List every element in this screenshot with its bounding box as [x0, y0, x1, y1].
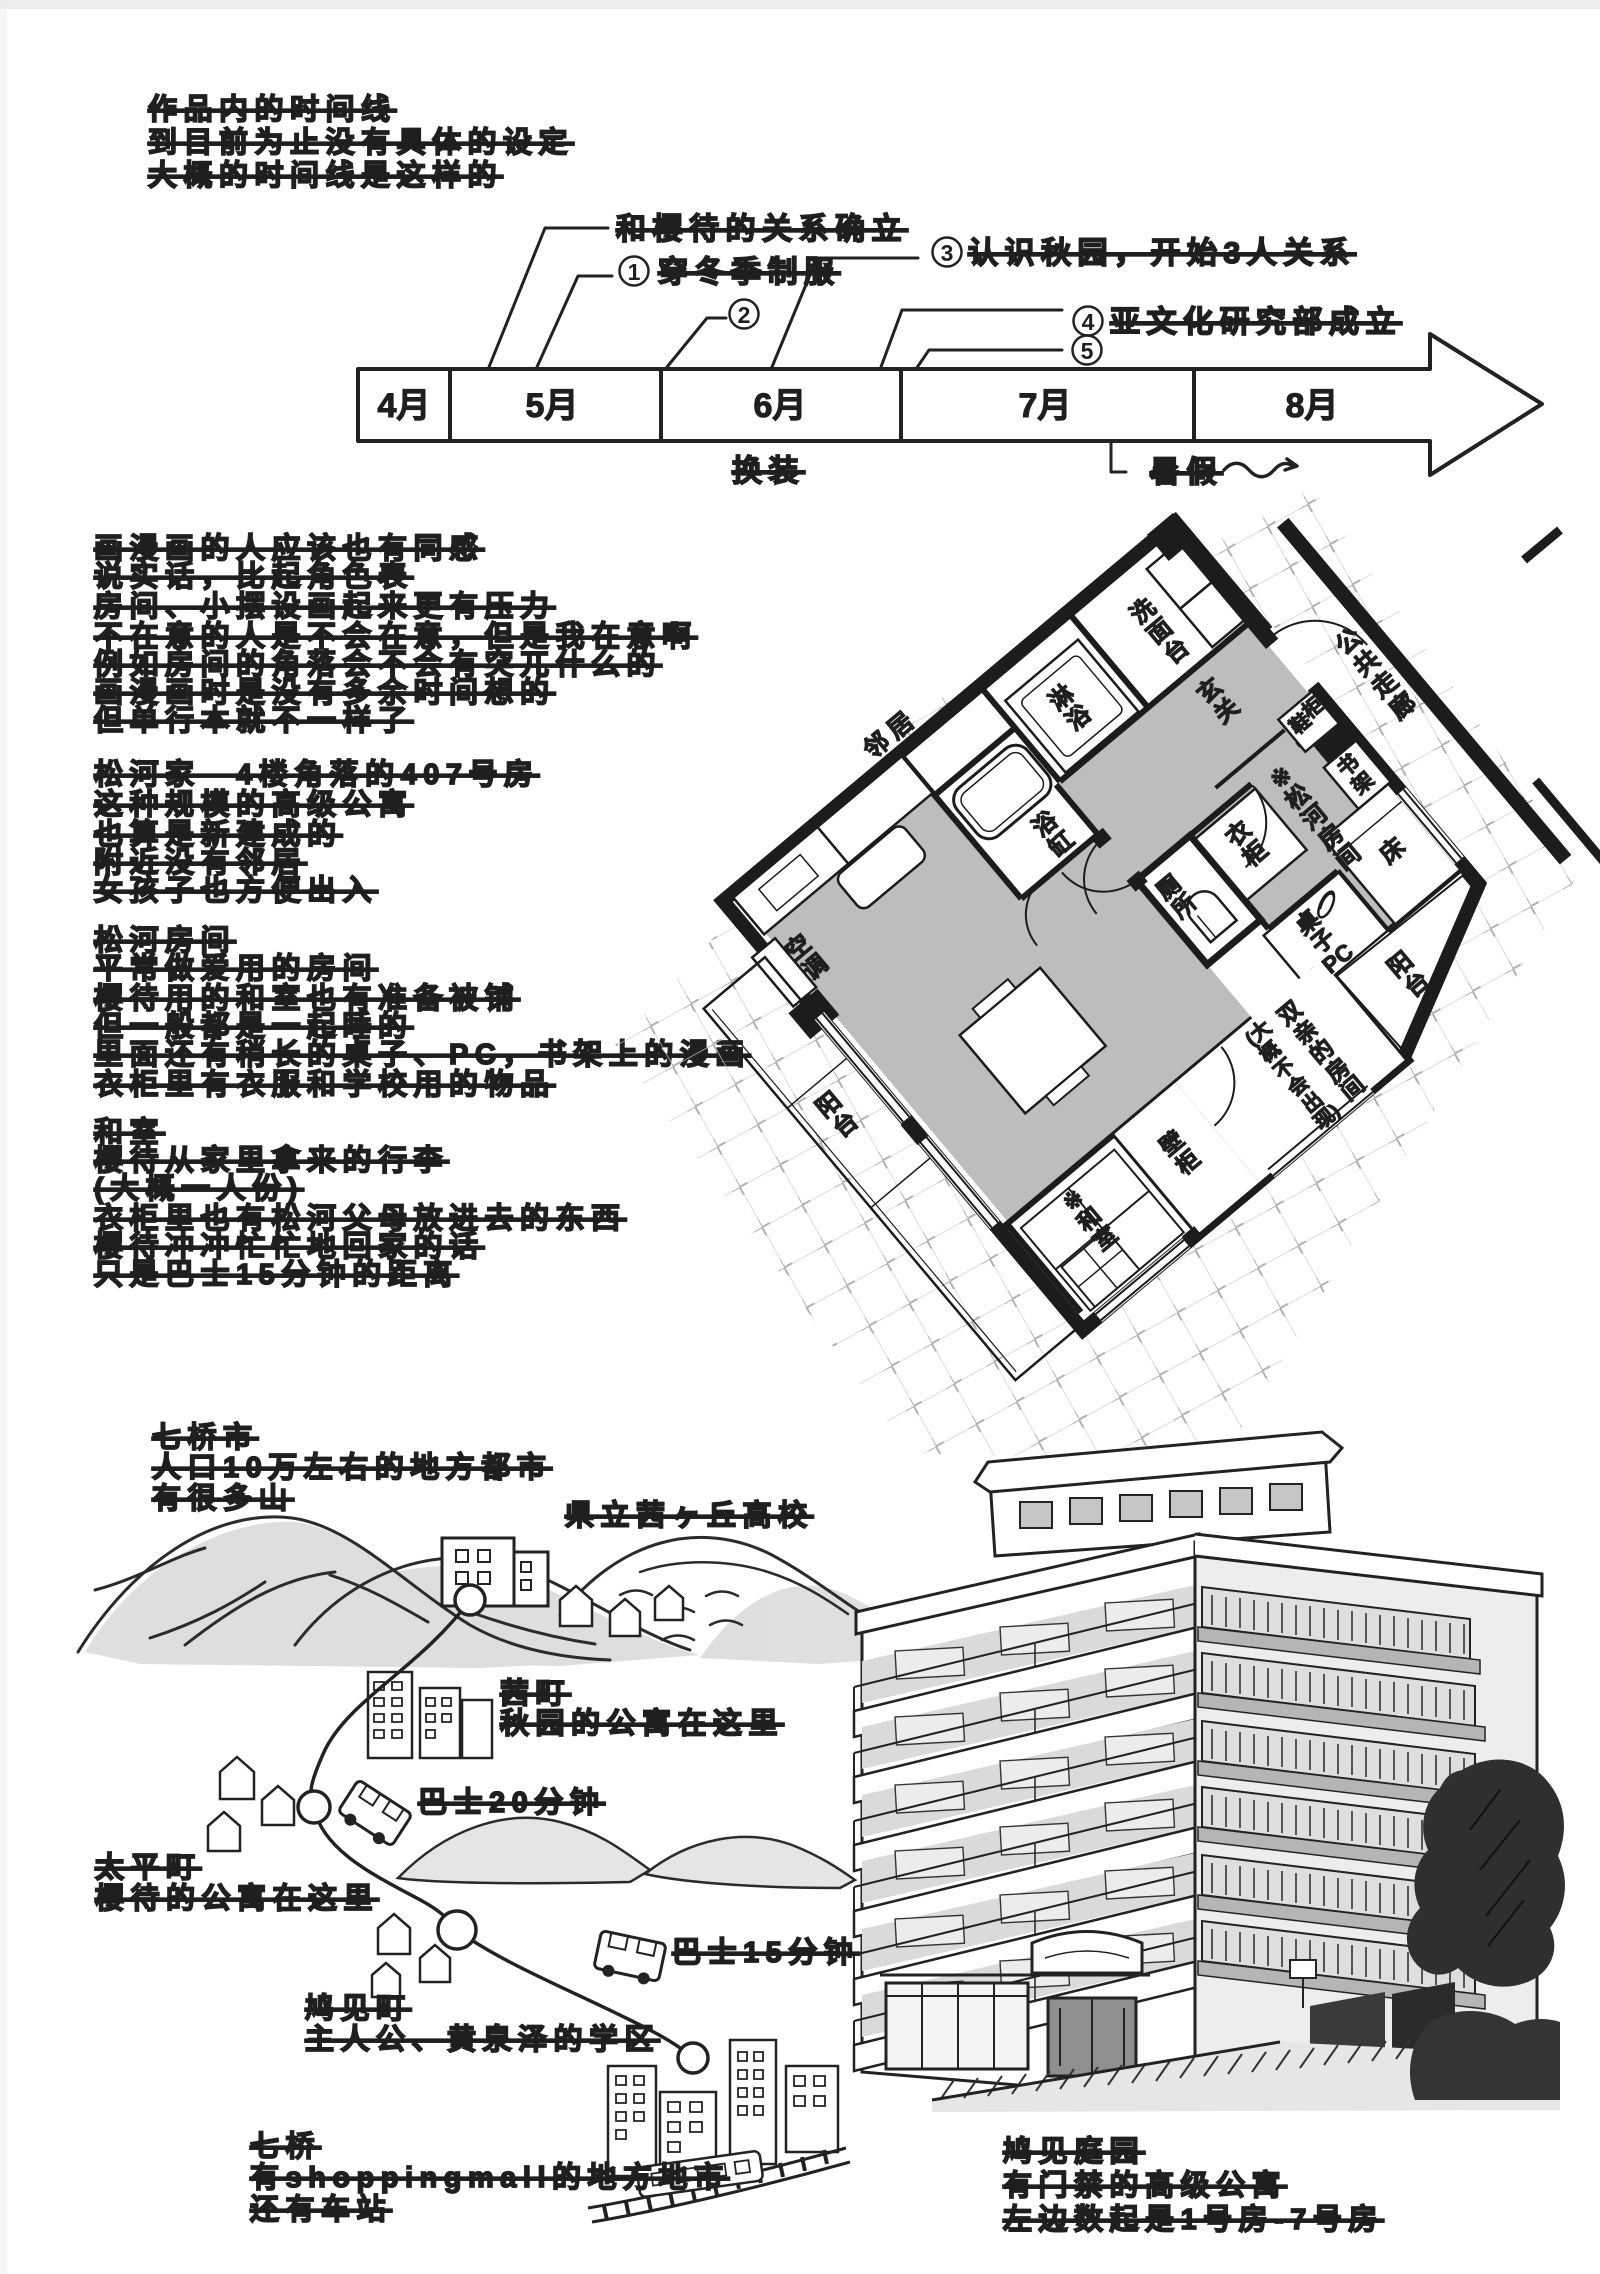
svg-text:樱待用的和室也有准备被铺: 樱待用的和室也有准备被铺	[94, 981, 520, 1015]
svg-text:3: 3	[941, 240, 954, 266]
svg-text:人口10万左右的地方都市: 人口10万左右的地方都市	[152, 1450, 552, 1484]
svg-text:女孩子也方便出入: 女孩子也方便出入	[94, 873, 378, 907]
svg-text:鸠见庭园: 鸠见庭园	[1003, 2134, 1145, 2168]
svg-text:画漫画时是没有多余时间想的: 画漫画时是没有多余时间想的	[94, 675, 556, 709]
svg-text:5月: 5月	[526, 387, 579, 425]
svg-text:6月: 6月	[754, 387, 807, 425]
svg-text:但一般都是一起睡的: 但一般都是一起睡的	[94, 1009, 414, 1043]
svg-text:鸠见町: 鸠见町	[305, 1992, 412, 2025]
svg-text:2: 2	[738, 302, 751, 328]
svg-text:5: 5	[1081, 338, 1094, 364]
svg-text:有shoppingmall的地方地市: 有shoppingmall的地方地市	[250, 2160, 730, 2194]
svg-text:穿冬季制服: 穿冬季制服	[658, 255, 841, 289]
svg-text:樱待冲冲忙忙地回家的话: 樱待冲冲忙忙地回家的话	[94, 1229, 485, 1263]
svg-text:巴士15分钟: 巴士15分钟	[672, 1936, 859, 1969]
svg-text:7月: 7月	[1019, 387, 1072, 425]
svg-text:(大概一人份): (大概一人份)	[94, 1172, 304, 1205]
svg-text:七桥: 七桥	[250, 2130, 321, 2163]
svg-text:平常做爱用的房间: 平常做爱用的房间	[94, 951, 378, 985]
svg-text:到目前为止没有具体的设定: 到目前为止没有具体的设定	[148, 125, 574, 159]
svg-text:衣柜里有衣服和学校用的物品: 衣柜里有衣服和学校用的物品	[94, 1067, 556, 1101]
svg-text:换装: 换装	[732, 455, 805, 488]
svg-text:左边数起是1号房-7号房: 左边数起是1号房-7号房	[1003, 2203, 1384, 2236]
svg-text:还有车站: 还有车站	[250, 2192, 392, 2226]
svg-text:也算是新建成的: 也算是新建成的	[94, 817, 343, 851]
svg-text:太平町: 太平町	[95, 1851, 202, 1884]
svg-text:茜町: 茜町	[500, 1677, 571, 1710]
svg-text:亚文化研究部成立: 亚文化研究部成立	[1110, 305, 1402, 339]
svg-text:県立茜ヶ丘高校: 県立茜ヶ丘高校	[565, 1498, 814, 1532]
svg-text:附近没有邻居: 附近没有邻居	[94, 845, 307, 879]
svg-text:4: 4	[1082, 309, 1095, 335]
svg-text:不在意的人是不会在意，但是我在意啊: 不在意的人是不会在意，但是我在意啊	[94, 619, 698, 653]
svg-text:松河家 4楼角落的407号房: 松河家 4楼角落的407号房	[94, 757, 540, 791]
svg-text:1: 1	[628, 259, 641, 285]
svg-text:只是巴士15分钟的距离: 只是巴士15分钟的距离	[94, 1257, 459, 1291]
svg-text:主人公、黄泉泽的学区: 主人公、黄泉泽的学区	[305, 2022, 660, 2056]
svg-text:有门禁的高级公寓: 有门禁的高级公寓	[1003, 2168, 1287, 2202]
svg-text:大概的时间线是这样的: 大概的时间线是这样的	[148, 158, 503, 192]
svg-text:巴士20分钟: 巴士20分钟	[418, 1786, 605, 1819]
svg-text:和樱待的关系确立: 和樱待的关系确立	[616, 212, 908, 246]
svg-text:作品内的时间线: 作品内的时间线	[148, 92, 397, 126]
svg-text:秋园的公寓在这里: 秋园的公寓在这里	[500, 1706, 784, 1740]
svg-text:房间、小摆设画起来更有压力: 房间、小摆设画起来更有压力	[94, 590, 556, 623]
svg-text:樱待的公寓在这里: 樱待的公寓在这里	[95, 1881, 379, 1915]
svg-text:认识秋园，开始3人关系: 认识秋园，开始3人关系	[968, 237, 1356, 270]
svg-text:和室: 和室	[94, 1115, 165, 1149]
svg-text:例如房间的角落会不会有突兀什么的: 例如房间的角落会不会有突兀什么的	[94, 647, 662, 681]
svg-text:七桥市: 七桥市	[152, 1420, 259, 1454]
svg-text:有很多山: 有很多山	[152, 1482, 294, 1515]
svg-text:这种规模的高级公寓: 这种规模的高级公寓	[94, 787, 414, 821]
svg-text:画漫画的人应该也有同感: 画漫画的人应该也有同感	[94, 531, 485, 565]
svg-text:樱待从家里拿来的行李: 樱待从家里拿来的行李	[94, 1143, 449, 1177]
svg-text:4月: 4月	[378, 387, 431, 425]
svg-text:暑假: 暑假	[1150, 456, 1223, 489]
svg-text:说实话，比起角色表: 说实话，比起角色表	[94, 559, 414, 593]
svg-text:衣柜里也有松河父母放进去的东西: 衣柜里也有松河父母放进去的东西	[94, 1201, 627, 1235]
svg-text:但单行本就不一样了: 但单行本就不一样了	[94, 703, 414, 737]
svg-text:8月: 8月	[1286, 387, 1339, 425]
